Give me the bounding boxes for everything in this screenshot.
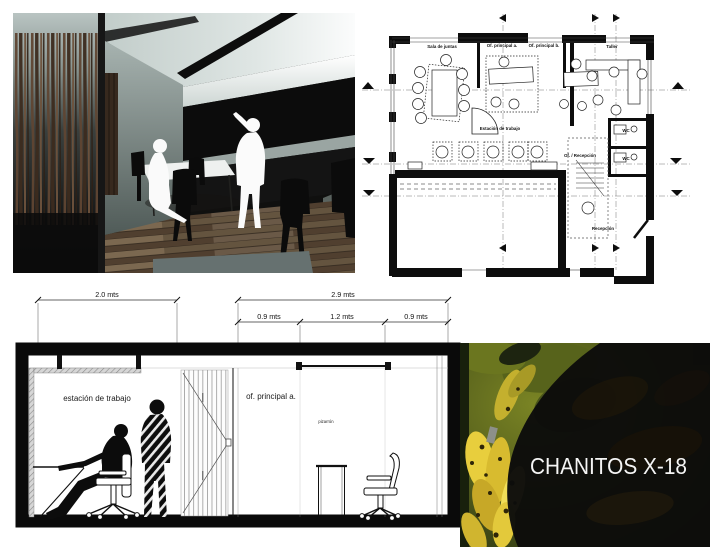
meeting-room-view [105,13,355,273]
label-taller: Taller [606,44,618,49]
section-drawing: 2.0 mts 2.9 mts 0.9 mts 1.2 mts 0.9 mts … [0,285,465,547]
interior-rendering [13,13,355,273]
label-wc-1: WC [622,128,630,133]
section-marker-triangles [362,14,684,252]
wall-hatch-left [29,368,34,517]
label-of-principal-b: Of. principal b. [529,43,560,48]
ceiling-hatch [34,368,141,373]
ceiling-hanger-1 [57,355,62,369]
label-estacion-de-trabajo: Estación de trabajo [480,126,521,131]
label-of-recepcion: Of. / Recepción [564,153,596,158]
dim-0-9-mts-right: 0.9 mts [404,312,428,321]
label-of-principal-a: Of. principal a. [487,43,518,48]
dim-2-9-mts: 2.9 mts [331,290,355,299]
label-sala-de-juntas: Sala de juntas [427,44,457,49]
section-label-pizarron: pizarrón [318,419,334,424]
section-label-estacion: estación de trabajo [63,394,131,403]
banana-photo: CHANITOS X-18 [460,343,710,547]
dim-0-9-mts-left: 0.9 mts [257,312,281,321]
presentation-board: Sala de juntas Of. principal a. Of. prin… [0,0,710,547]
wood-slat-wall [105,73,118,195]
section-dimension-texts: 2.0 mts 2.9 mts 0.9 mts 1.2 mts 0.9 mts [95,290,428,321]
section-dimensions [35,297,451,349]
label-wc-2: WC [622,156,630,161]
window-mullion [98,13,106,273]
slatted-door [181,370,231,516]
entry-door-leaf [634,220,648,238]
section-label-of-principal-a: of. principal a. [246,392,296,401]
dim-2-0-mts: 2.0 mts [95,290,119,299]
label-recepcion: Recepción [592,226,615,231]
dim-1-2-mts: 1.2 mts [330,312,354,321]
bamboo-screen [13,13,105,273]
photo-title: CHANITOS X-18 [530,453,687,479]
ceiling-hanger-2 [136,355,141,369]
floor-plan: Sala de juntas Of. principal a. Of. prin… [358,8,710,286]
